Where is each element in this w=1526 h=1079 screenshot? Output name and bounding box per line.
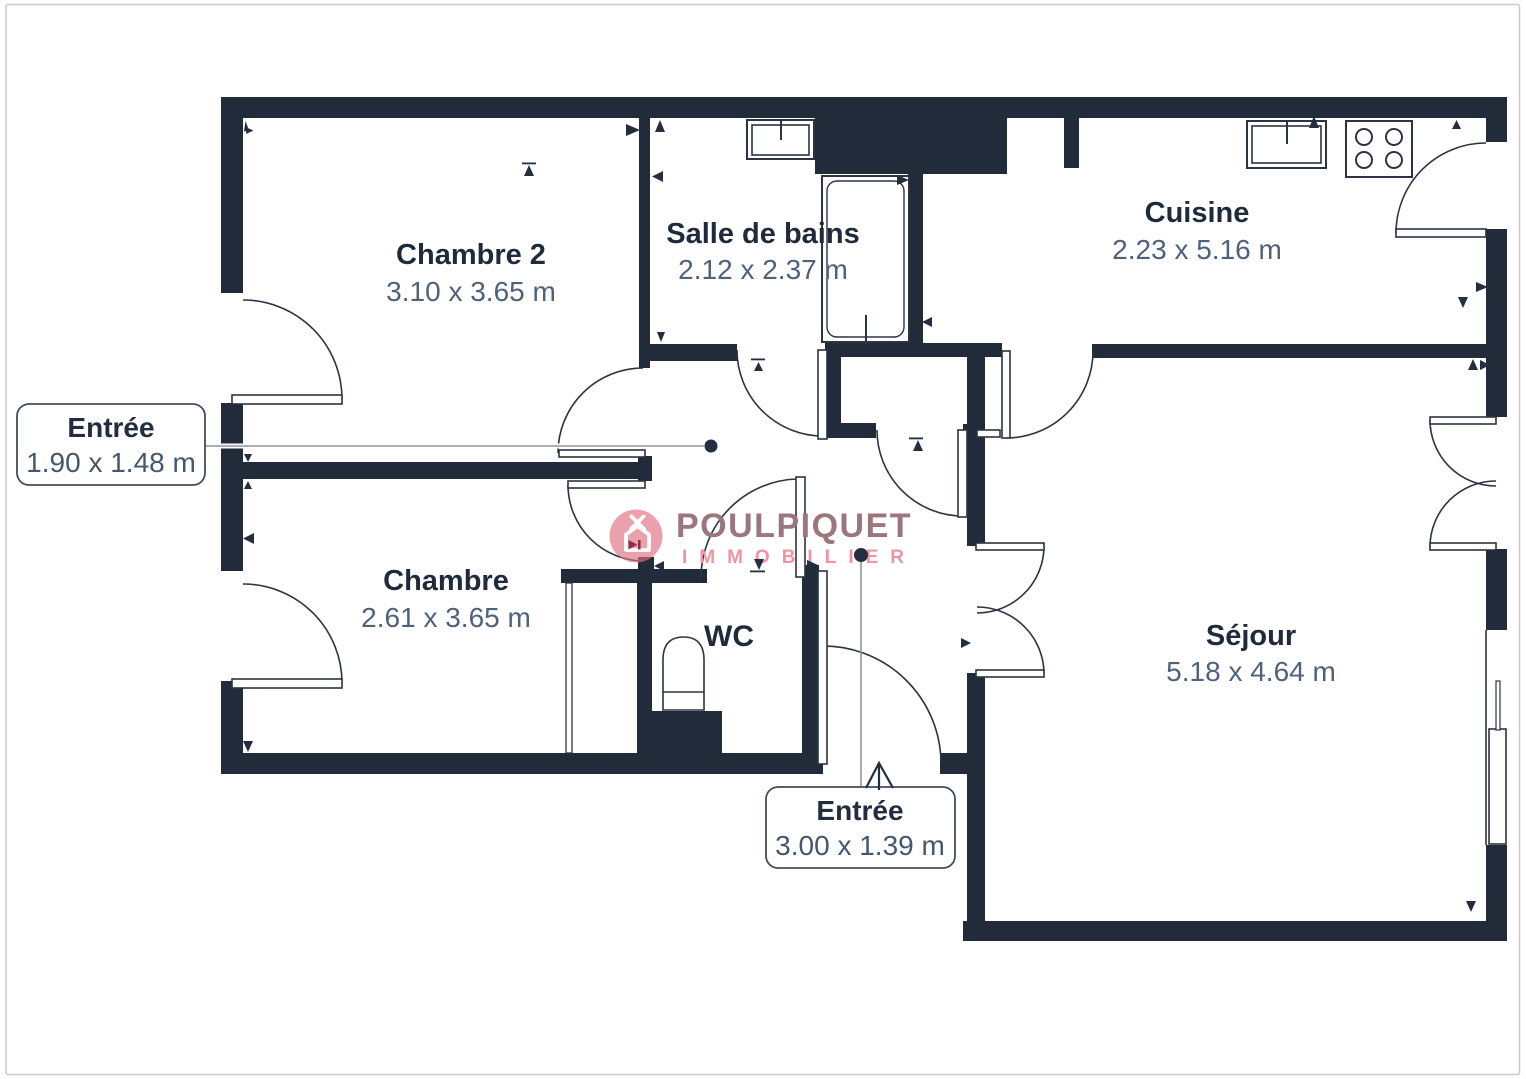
- svg-text:Cuisine: Cuisine: [1145, 197, 1250, 229]
- svg-text:Salle de bains: Salle de bains: [666, 218, 859, 250]
- svg-text:3.00 x 1.39 m: 3.00 x 1.39 m: [775, 830, 945, 861]
- svg-text:Chambre: Chambre: [383, 565, 509, 597]
- svg-text:Entrée: Entrée: [816, 795, 903, 826]
- svg-text:2.23 x 5.16 m: 2.23 x 5.16 m: [1112, 234, 1282, 265]
- svg-text:5.18 x 4.64 m: 5.18 x 4.64 m: [1166, 656, 1336, 687]
- svg-text:3.10 x 3.65 m: 3.10 x 3.65 m: [386, 276, 556, 307]
- svg-text:Entrée: Entrée: [67, 412, 154, 443]
- svg-text:2.12 x 2.37 m: 2.12 x 2.37 m: [678, 254, 848, 285]
- svg-text:IMMOBILIER: IMMOBILIER: [682, 547, 916, 568]
- svg-text:Séjour: Séjour: [1206, 620, 1296, 652]
- svg-text:WC: WC: [704, 620, 754, 653]
- svg-text:Chambre 2: Chambre 2: [396, 239, 546, 271]
- svg-text:POULPIQUET: POULPIQUET: [676, 507, 912, 545]
- svg-text:2.61 x 3.65 m: 2.61 x 3.65 m: [361, 602, 531, 633]
- svg-text:1.90 x 1.48 m: 1.90 x 1.48 m: [26, 447, 196, 478]
